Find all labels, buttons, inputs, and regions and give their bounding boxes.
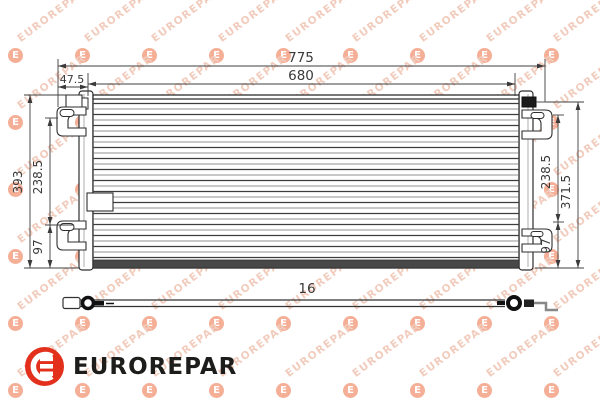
dim-left-total: 393 (11, 171, 25, 194)
dim-top-core: 680 (288, 68, 314, 84)
condenser-front-view (57, 91, 552, 270)
side-view-left-cap (63, 298, 80, 309)
core-outline (93, 95, 519, 268)
right-top-connector (522, 97, 536, 107)
dim-top-offset: 47.5 (60, 73, 85, 86)
dim-right-upper: 238.5 (539, 155, 553, 189)
condenser-technical-drawing: 775 680 47.5 393 238.5 97 238.5 97 371.5… (0, 0, 600, 400)
side-view-left-fitting (83, 298, 94, 309)
logo-e-bar (40, 372, 53, 377)
dim-right-lower: 97 (539, 238, 553, 253)
core-bottom-band (93, 260, 519, 268)
left-mid-block (87, 193, 113, 211)
condenser-side-view: 16 (63, 281, 558, 310)
dim-left-upper: 238.5 (31, 160, 45, 194)
right-lower-bracket-slot (531, 232, 543, 237)
brand-logo: EUROREPAR (25, 347, 237, 386)
dim-left-lower: 97 (31, 239, 45, 254)
logo-e-bar (40, 357, 53, 362)
side-view-pipe (534, 303, 558, 310)
dim-top-overall: 775 (288, 50, 314, 66)
side-view-right-ring (508, 297, 520, 309)
brand-name: EUROREPAR (73, 354, 237, 380)
dim-depth: 16 (298, 281, 315, 297)
side-view-right-block (524, 300, 534, 308)
page: EEUROREPAREEUROREPAREEUROREPAREEUROREPAR… (0, 0, 600, 400)
side-view-left-stub (95, 301, 104, 306)
right-upper-bracket-slot (531, 113, 544, 119)
logo-e-bar (40, 364, 53, 369)
dim-right-total: 371.5 (559, 175, 573, 209)
left-upper-bracket-slot (60, 110, 74, 117)
brand-logo-icon (25, 347, 64, 386)
side-view-right-tick (497, 301, 505, 305)
